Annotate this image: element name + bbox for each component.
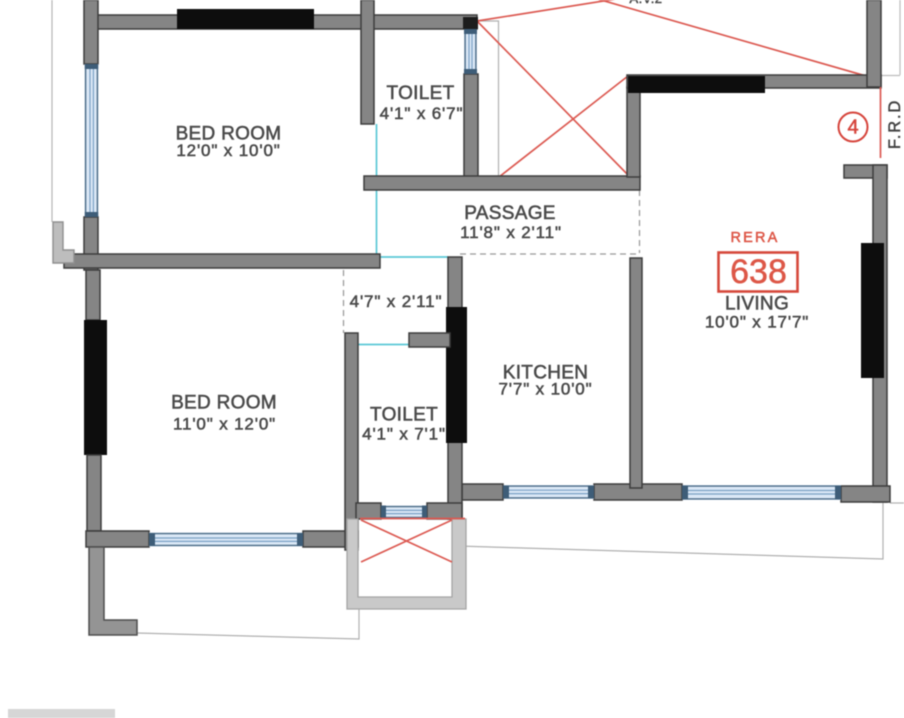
svg-text:10'0" x 17'7": 10'0" x 17'7"	[705, 313, 809, 332]
svg-text:TOILET: TOILET	[387, 83, 455, 104]
svg-text:F.R.D: F.R.D	[886, 99, 904, 149]
svg-text:4: 4	[847, 117, 858, 139]
svg-text:A.V.2: A.V.2	[629, 0, 662, 6]
svg-text:TOILET: TOILET	[370, 405, 438, 426]
svg-text:4'1" x 6'7": 4'1" x 6'7"	[380, 104, 464, 123]
svg-text:11'8" x 2'11": 11'8" x 2'11"	[460, 223, 562, 242]
svg-text:PASSAGE: PASSAGE	[464, 203, 556, 224]
svg-text:LIVING: LIVING	[725, 294, 789, 315]
svg-text:4'1" x 7'1": 4'1" x 7'1"	[362, 425, 446, 444]
svg-text:4'7" x 2'11": 4'7" x 2'11"	[350, 292, 443, 311]
svg-text:BED ROOM: BED ROOM	[171, 393, 277, 414]
svg-text:638: 638	[730, 253, 787, 291]
svg-text:11'0" x 12'0": 11'0" x 12'0"	[173, 415, 276, 434]
svg-text:7'7" x 10'0": 7'7" x 10'0"	[499, 380, 593, 399]
svg-text:12'0" x 10'0": 12'0" x 10'0"	[176, 141, 280, 160]
svg-text:RERA: RERA	[730, 230, 779, 246]
